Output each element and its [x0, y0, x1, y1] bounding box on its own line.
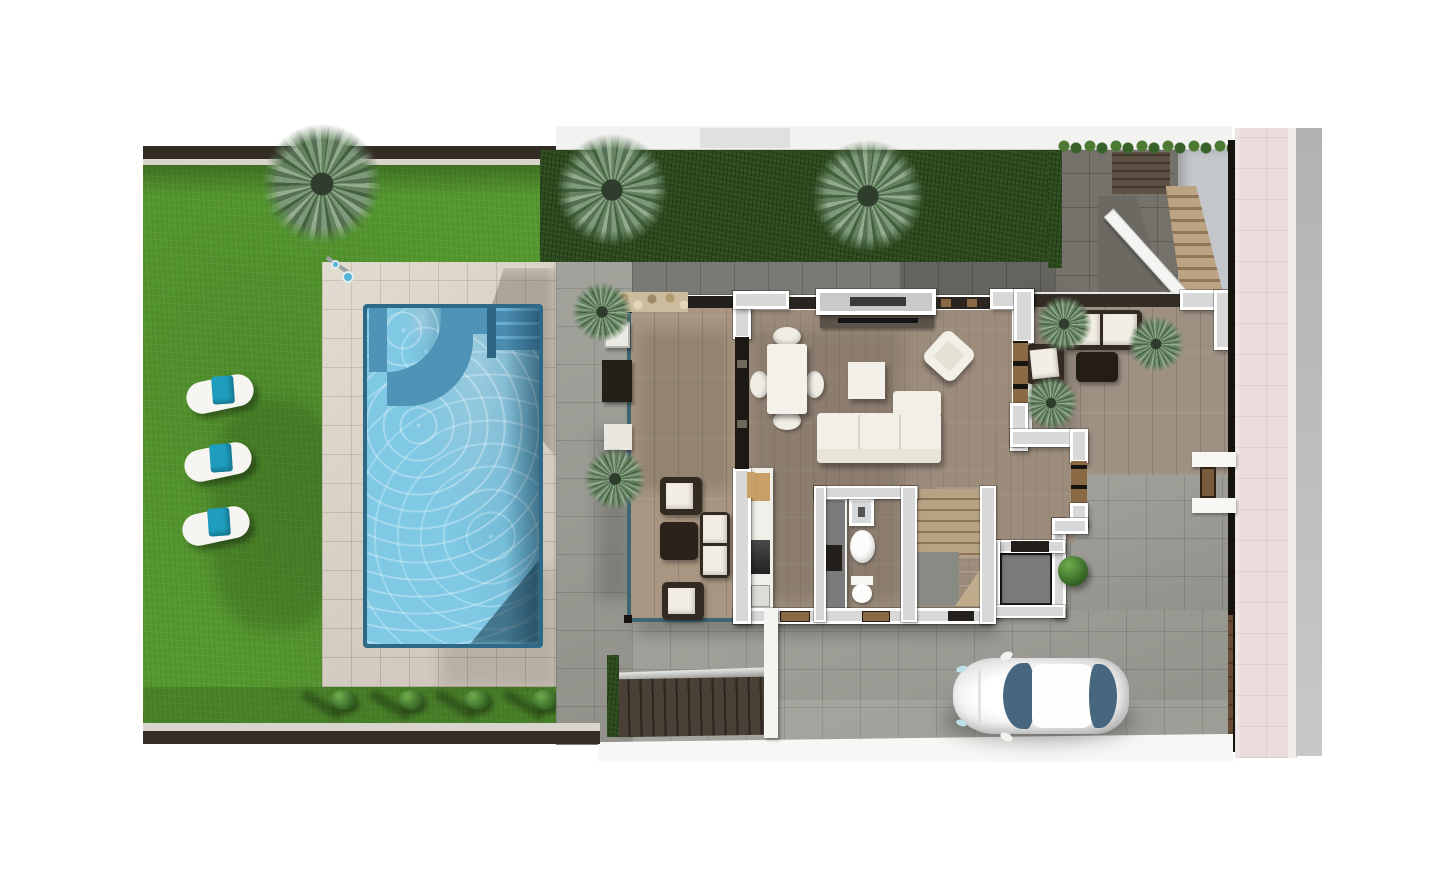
wall-se — [980, 486, 996, 624]
utility-bush — [1058, 556, 1088, 586]
courtyard-vines — [1056, 138, 1230, 154]
sidewalk-seam — [1288, 128, 1296, 758]
east-glass-doors — [1013, 341, 1028, 407]
north-glass-1 — [789, 297, 816, 309]
sofa-back — [817, 449, 941, 463]
bath-wall-left — [814, 486, 826, 622]
south-door-dark — [948, 611, 974, 621]
kitchen-sink — [751, 585, 770, 607]
terrace-shade — [638, 330, 730, 490]
gate-pillar — [1192, 498, 1236, 513]
path-palm — [584, 448, 646, 510]
car-roof — [1032, 664, 1092, 728]
path-table-black — [602, 360, 632, 402]
terrace-sofa-cushion — [703, 515, 727, 543]
sofa-seam — [858, 415, 860, 449]
patio-palm — [1024, 376, 1078, 430]
utility-wall-bottom — [987, 605, 1065, 618]
patio-coffee-table — [1076, 352, 1118, 382]
terrace-armchair-cushion — [668, 588, 695, 614]
shower-head-large — [342, 271, 354, 283]
path-chair-white — [604, 424, 632, 450]
south-stair-slats — [618, 677, 767, 738]
stair-upper-treads — [1112, 152, 1170, 194]
sofa-seam — [899, 415, 901, 449]
stair-landing — [917, 552, 959, 606]
north-window-slot — [850, 297, 906, 306]
utility-door — [1011, 541, 1049, 552]
wall-ne-v — [1014, 289, 1034, 343]
dining-chair — [805, 371, 824, 398]
wall-east2-top — [1070, 429, 1088, 463]
car-hood-line — [978, 668, 981, 724]
lounger-towel — [211, 375, 235, 404]
utility-wall-stub — [1052, 518, 1088, 534]
patio-armchair-cushion — [1030, 348, 1060, 380]
kitchen-cooktop — [751, 540, 770, 574]
terrace-post — [624, 615, 632, 623]
wall-east-jog-h — [1010, 429, 1072, 447]
terrace-side-table — [660, 522, 698, 560]
hedge-palm — [812, 140, 924, 252]
patio-palm — [1128, 316, 1184, 372]
neighbor-roof-gray — [700, 128, 790, 148]
south-door-sill — [780, 611, 810, 622]
stair-treads — [917, 489, 980, 557]
floor-plan-scene — [0, 0, 1440, 891]
pool-bench-left — [369, 308, 389, 372]
lounger-towel — [209, 443, 233, 472]
terrace-sofa-cushion — [703, 546, 727, 575]
car-windshield — [1003, 663, 1035, 729]
south-white-column — [764, 608, 778, 738]
wall-nw-h — [733, 291, 789, 309]
east-door-brown — [1071, 461, 1087, 505]
south-wall-dark — [143, 731, 600, 744]
gate-pillar — [1192, 452, 1236, 467]
road-strip — [1296, 128, 1322, 756]
terrace-north-wall — [688, 296, 735, 308]
toilet-bowl — [852, 584, 872, 603]
courtyard-hedge — [1048, 150, 1062, 268]
bath-wall-mid — [901, 486, 917, 622]
tv — [838, 318, 918, 323]
lounger-towel — [207, 507, 231, 536]
south-door-sill — [862, 611, 890, 622]
north-door-mark — [941, 299, 951, 307]
west-sliding-doors — [735, 337, 749, 469]
north-door-mark — [967, 299, 977, 307]
shower-head-small — [331, 260, 340, 269]
terrace-armchair-cushion — [666, 483, 693, 509]
pedestrian-gate-door — [1200, 467, 1216, 498]
south-hedge-bit — [607, 655, 619, 737]
deck-palm — [572, 282, 632, 342]
hedge-palm — [556, 134, 668, 246]
bathroom-basin — [850, 530, 875, 563]
coffee-table — [848, 362, 885, 399]
utility-floor — [1000, 553, 1052, 605]
dining-table — [767, 344, 807, 414]
west-door-gap — [737, 420, 747, 428]
shower-drain — [858, 507, 865, 517]
patio-palm — [1036, 296, 1092, 352]
garden-palm — [262, 124, 382, 244]
pool-step-divider — [487, 308, 496, 358]
west-door-gap — [737, 360, 747, 368]
island-inset — [824, 545, 842, 571]
west-wall-wood — [747, 472, 755, 498]
